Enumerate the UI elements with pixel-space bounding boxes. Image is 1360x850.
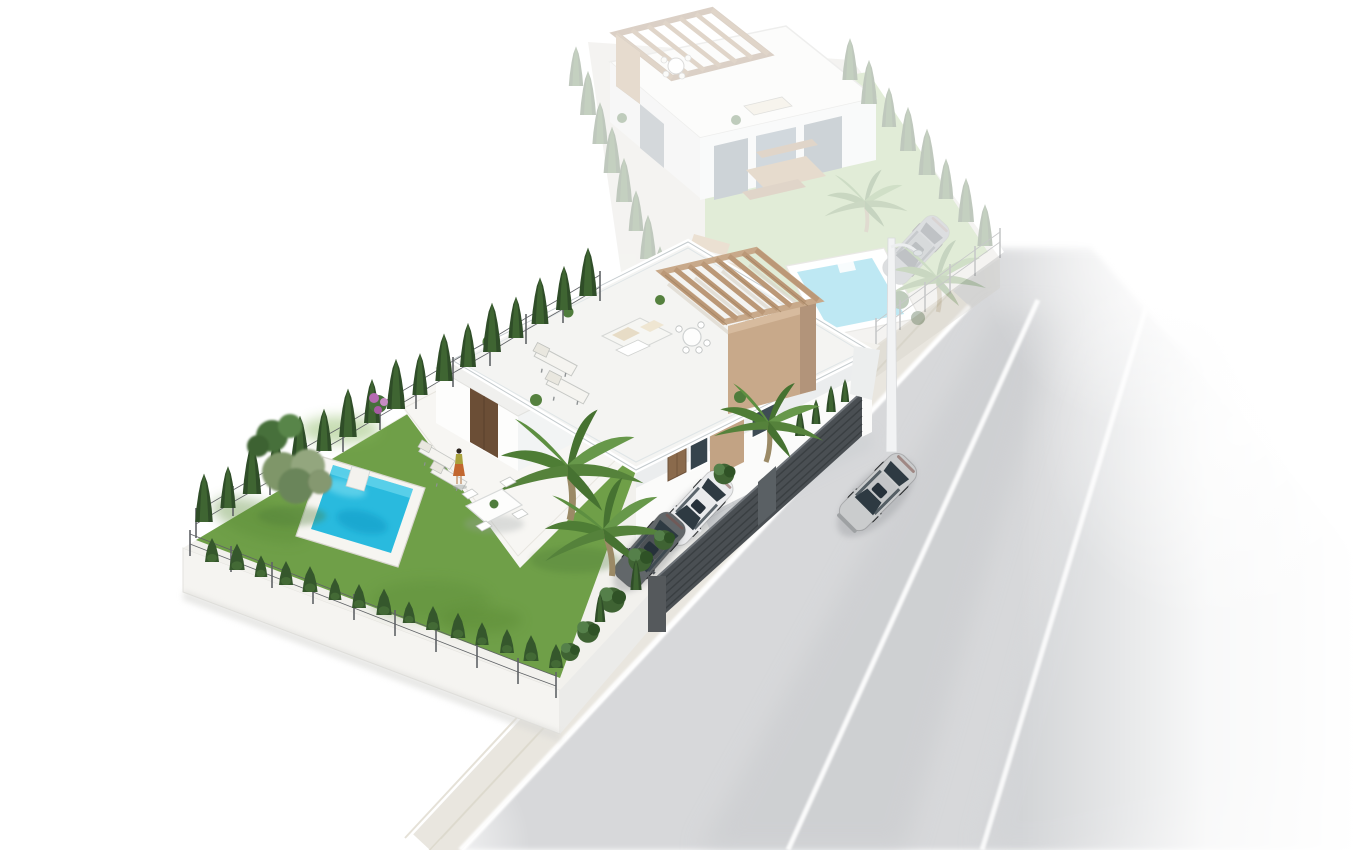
faded-roof-table	[668, 58, 684, 74]
faded-chair	[663, 71, 669, 77]
faded-roof-plant	[617, 113, 627, 123]
tree-shadow	[258, 506, 326, 526]
roof-plant	[655, 295, 665, 305]
faded-chair	[685, 55, 691, 61]
dining-chair	[698, 322, 704, 328]
faded-chair	[679, 73, 685, 79]
person-head	[456, 448, 461, 453]
faded-roof-plant	[731, 115, 741, 125]
faded-shrub	[911, 311, 925, 325]
faded-glass-door	[714, 138, 748, 200]
person-top	[455, 454, 463, 464]
roof-plant	[530, 394, 542, 406]
fence-pillar	[648, 576, 666, 632]
person-skirt	[453, 464, 465, 476]
dining-chair	[704, 340, 710, 346]
faded-chair	[661, 57, 667, 63]
render-canvas	[0, 0, 1360, 850]
dining-chair	[676, 326, 682, 332]
lamp-pole	[886, 238, 897, 452]
dining-chair	[683, 347, 689, 353]
person-shadow	[453, 485, 467, 490]
dining-chair	[696, 347, 702, 353]
palm-shadow	[531, 547, 619, 573]
round-dining-table	[683, 328, 701, 346]
table-plant	[490, 500, 499, 509]
bulkhead-shaded	[800, 302, 816, 394]
lamp-head	[914, 250, 923, 256]
